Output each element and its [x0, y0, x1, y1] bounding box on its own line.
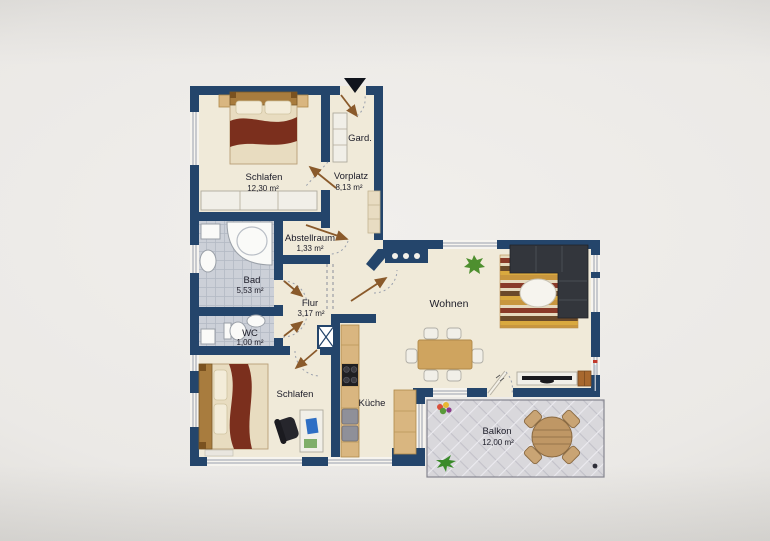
- chair: [472, 349, 483, 363]
- balcony-drain: [593, 464, 598, 469]
- hall-cabinet: [368, 191, 380, 233]
- label-gard: Gard.: [348, 133, 372, 144]
- desk-pad: [304, 439, 317, 448]
- chair: [447, 370, 461, 381]
- chair: [424, 370, 438, 381]
- label-kueche: Küche: [359, 398, 386, 409]
- label-balkon-area: 12,00 m²: [482, 438, 514, 447]
- label-wohnen: Wohnen: [430, 298, 469, 310]
- nightstand-right: [297, 95, 308, 107]
- window-wohnen-right-1: [591, 255, 600, 272]
- label-vorplatz-area: 8,13 m²: [335, 183, 362, 192]
- sideboard: [578, 371, 591, 386]
- label-schlafen1: Schlafen: [246, 172, 283, 183]
- wc-washer: [201, 329, 215, 344]
- window-bad: [190, 245, 199, 273]
- window-wohnen-top: [443, 240, 497, 249]
- bad-cabinet: [201, 224, 220, 239]
- label-wc-area: 1,00 m²: [236, 338, 263, 347]
- label-schlafen1-area: 12,30 m²: [247, 184, 279, 193]
- label-bad: Bad: [244, 275, 261, 286]
- dining-table: [418, 340, 472, 369]
- floor-plan-photo: Schlafen 12,30 m² Gard. Vorplatz 8,13 m²…: [0, 0, 770, 541]
- chair: [424, 328, 438, 339]
- shaft-box: [318, 326, 334, 348]
- chair: [447, 328, 461, 339]
- window-kueche: [328, 457, 392, 466]
- label-vorplatz: Vorplatz: [334, 171, 369, 182]
- laptop: [306, 418, 319, 434]
- chair: [406, 349, 417, 363]
- dresser: [201, 191, 317, 210]
- floor-plan-svg: Schlafen 12,30 m² Gard. Vorplatz 8,13 m²…: [0, 0, 770, 541]
- coffee-table: [520, 279, 556, 307]
- label-abstellraum: Abstellraum: [285, 233, 335, 244]
- wardrobe: [333, 113, 347, 162]
- window-bench: [205, 450, 233, 456]
- label-flur-area: 3,17 m²: [297, 309, 324, 318]
- kitchen-island: [394, 390, 416, 454]
- label-bad-area: 5,53 m²: [236, 286, 263, 295]
- double-bed: [230, 92, 297, 164]
- stove: [342, 364, 358, 386]
- balcony: [427, 400, 604, 477]
- window-wohnen-right-2: [591, 278, 600, 312]
- label-flur: Flur: [302, 298, 318, 309]
- label-schlafen2: Schlafen: [277, 389, 314, 400]
- window-schlafen2-bottom: [207, 457, 302, 466]
- label-balkon: Balkon: [482, 426, 511, 437]
- label-abstellraum-area: 1,33 m²: [296, 244, 323, 253]
- window-wohnen-bottom: [433, 388, 467, 397]
- single-bed: [199, 364, 268, 449]
- wc-sink: [247, 315, 265, 327]
- window-schlafen2-left: [190, 393, 199, 427]
- bad-sink: [200, 250, 216, 272]
- tv-unit: [517, 372, 577, 385]
- window-schlafen1: [190, 112, 199, 165]
- nightstand-left: [219, 95, 230, 107]
